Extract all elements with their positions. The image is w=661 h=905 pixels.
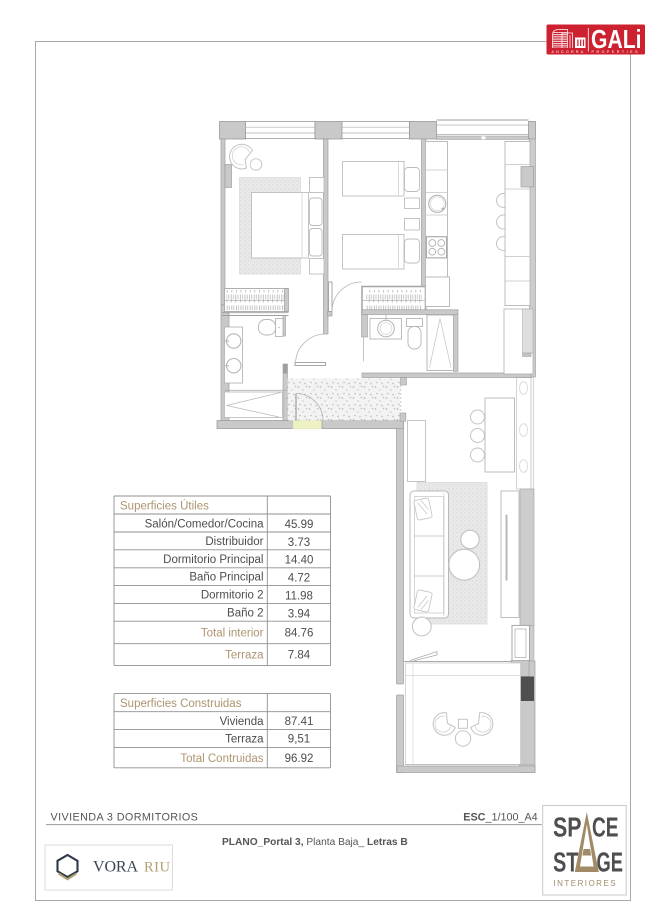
svg-text:11.98: 11.98 <box>285 591 313 603</box>
svg-text:84.76: 84.76 <box>285 628 314 640</box>
svg-text:PLANO_Portal 3, Planta Baja_ L: PLANO_Portal 3, Planta Baja_ Letras B <box>222 837 408 848</box>
svg-text:7.84: 7.84 <box>288 650 311 662</box>
svg-text:INTERIORES: INTERIORES <box>554 879 618 888</box>
svg-text:Vivienda: Vivienda <box>220 716 265 728</box>
svg-text:SP: SP <box>553 812 582 843</box>
svg-text:VIVIENDA 3 DORMITORIOS: VIVIENDA 3 DORMITORIOS <box>51 812 199 824</box>
svg-text:Baño Principal: Baño Principal <box>189 572 263 584</box>
svg-text:4.72: 4.72 <box>288 573 310 585</box>
svg-text:9,51: 9,51 <box>288 734 310 746</box>
svg-text:RIU: RIU <box>144 860 171 876</box>
svg-text:Terraza: Terraza <box>225 734 264 746</box>
svg-text:ANDORRA: ANDORRA <box>552 50 585 54</box>
svg-text:Dormitorio 2: Dormitorio 2 <box>201 590 264 602</box>
svg-text:45.99: 45.99 <box>285 519 314 531</box>
svg-text:96.92: 96.92 <box>285 753 314 765</box>
svg-text:Dormitorio Principal: Dormitorio Principal <box>163 554 263 566</box>
svg-text:PROPERTIES: PROPERTIES <box>592 50 639 54</box>
svg-text:Total Contruidas: Total Contruidas <box>180 753 263 765</box>
svg-text:14.40: 14.40 <box>285 555 314 567</box>
svg-text:3.73: 3.73 <box>288 537 310 549</box>
svg-text:Distribuidor: Distribuidor <box>205 536 263 548</box>
svg-text:3.94: 3.94 <box>288 608 311 620</box>
svg-text:Baño 2: Baño 2 <box>227 607 263 619</box>
svg-text:VORA: VORA <box>93 859 140 876</box>
svg-text:87.41: 87.41 <box>285 716 314 728</box>
svg-text:Terraza: Terraza <box>225 650 264 662</box>
svg-text:CE: CE <box>592 812 619 843</box>
svg-text:GE: GE <box>597 847 624 878</box>
svg-text:ST: ST <box>553 847 579 878</box>
svg-text:Salón/Comedor/Cocina: Salón/Comedor/Cocina <box>145 518 265 530</box>
svg-text:Total interior: Total interior <box>201 628 264 640</box>
svg-text:Superficies Útiles: Superficies Útiles <box>120 499 209 512</box>
svg-text:ESC_1/100_A4: ESC_1/100_A4 <box>463 812 537 824</box>
svg-text:Superficies Construidas: Superficies Construidas <box>120 698 242 710</box>
